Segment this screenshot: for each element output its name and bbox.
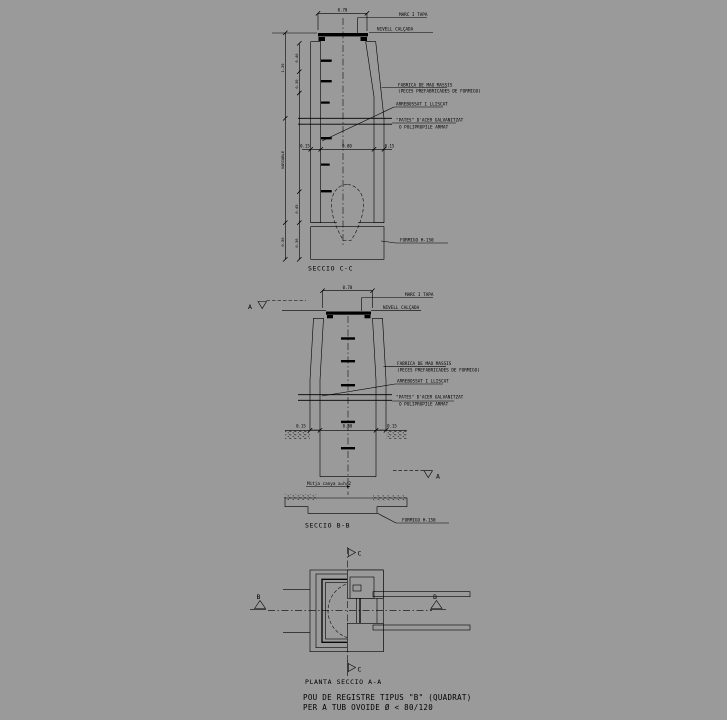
- label-pates-2-bb: O POLIPROPILE ARMAT: [399, 402, 449, 408]
- dim-left-inner-1: 0.40: [294, 53, 299, 63]
- label-mitja-canya: Mitja canya a=h/2: [307, 481, 351, 487]
- dim-wall-left-bb: 0.15: [296, 424, 306, 429]
- dim-left-inner-3: 0.45: [294, 204, 299, 213]
- cad-drawing-sheet: 0.70 MARC I TAPA NIVELL CALÇADA FABRICA …: [0, 0, 727, 720]
- dim-wall-left: 0.15: [300, 144, 310, 149]
- label-formigo-bb: FORMIGO H-150: [402, 518, 436, 524]
- dim-inner-width: 0.80: [342, 144, 352, 149]
- svg-text:B: B: [257, 593, 262, 601]
- plan-wall-block-top: [347, 570, 383, 598]
- dim-inner-width-bb: 0.80: [343, 424, 353, 429]
- label-pates-1: "PATES" D'ACER GALVANITZAT: [396, 118, 464, 124]
- label-pates-1-bb: "PATES" D'ACER GALVANITZAT: [396, 395, 464, 401]
- dim-top-width: 0.70: [338, 8, 348, 13]
- caption-seccio-cc: SECCIO C-C: [308, 265, 353, 273]
- caption-seccio-bb: SECCIO B-B: [305, 522, 350, 530]
- caption-planta: PLANTA SECCIO A-A: [305, 678, 382, 686]
- ground-hatch-left: [285, 431, 310, 440]
- label-nivell-calcada: NIVELL CALÇADA: [377, 27, 414, 33]
- dim-wall-right: 0.15: [385, 144, 395, 149]
- label-fabrica-2: (PECES PREFABRICADES DE FORMIGO): [398, 89, 481, 95]
- svg-text:B: B: [433, 593, 438, 601]
- cover-frame-left: [319, 37, 326, 41]
- dim-left-inner-4: 0.30: [294, 238, 299, 248]
- title-line-1: POU DE REGISTRE TIPUS "B" (QUADRAT): [303, 693, 472, 702]
- slab-top-hatch-left: [284, 495, 317, 501]
- svg-text:A: A: [248, 303, 253, 311]
- label-pates-2: O POLIPROPILE ARMAT: [399, 125, 449, 131]
- dim-left-outer-mid: VARIABLE: [280, 150, 285, 169]
- title-line-2: PER A TUB OVOIDE Ø < 80/120: [303, 703, 433, 712]
- dim-left-outer-bottom: 0.50: [280, 237, 285, 247]
- svg-text:C: C: [358, 666, 363, 674]
- dim-top-width-bb: 0.70: [343, 285, 353, 290]
- manhole-cover-bb: [326, 312, 371, 315]
- svg-text:C: C: [358, 550, 363, 558]
- label-marc-i-tapa: MARC I TAPA: [399, 12, 428, 18]
- label-nivell-calcada-bb: NIVELL CALÇADA: [383, 305, 420, 311]
- dim-left-outer-top: 1.20: [280, 63, 285, 73]
- label-arrebossat-bb: ARREBOSSAT I LLISCAT: [397, 379, 449, 385]
- label-formigo-cc: FORMIGO H-150: [400, 238, 434, 244]
- label-fabrica-2-bb: (PECES PREFABRICADES DE FORMIGO): [397, 368, 480, 374]
- cover-frame-right: [361, 37, 368, 41]
- plan-wall-block-bottom: [347, 623, 383, 651]
- ground-hatch-right: [386, 431, 407, 440]
- label-marc-i-tapa-bb: MARC I TAPA: [405, 292, 434, 298]
- dim-wall-right-bb: 0.15: [387, 424, 397, 429]
- dim-left-inner-2: 0.30: [294, 79, 299, 89]
- svg-text:A: A: [436, 473, 441, 481]
- label-arrebossat: ARREBOSSAT I LLISCAT: [396, 102, 448, 108]
- sheet-background: [0, 0, 727, 720]
